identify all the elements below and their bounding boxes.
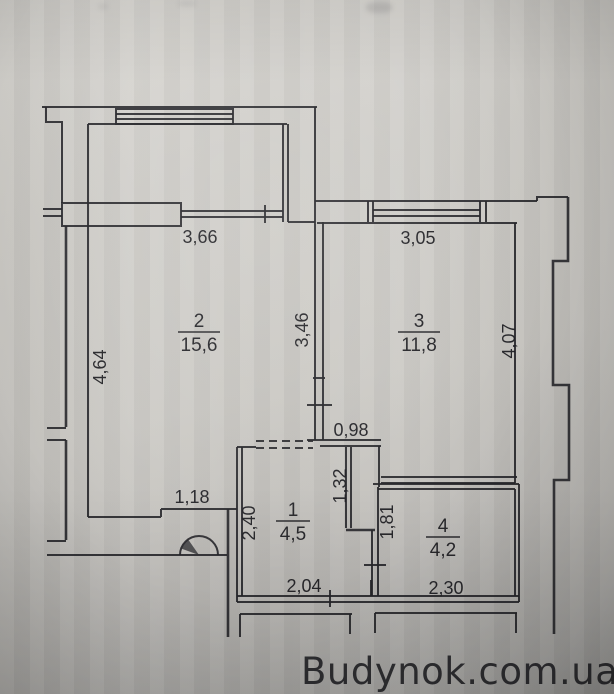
dim-partition-mid: 3,46 (292, 312, 312, 347)
room3-label: 3 11,8 (398, 311, 440, 356)
dim-room2-left: 4,64 (90, 349, 110, 384)
floor-plan-svg: 3,66 3,05 4,64 3,46 4,07 0,98 1,32 1,18 … (0, 0, 614, 694)
dim-room2-bottom: 1,18 (174, 487, 209, 507)
entrance-door-arc (180, 536, 218, 555)
dim-room4-bottom: 2,30 (428, 578, 463, 598)
room1-area: 4,5 (280, 524, 306, 545)
room3-area: 11,8 (401, 335, 437, 356)
dim-hall-left: 2,40 (239, 505, 259, 540)
corridor-stub-lines (240, 613, 517, 637)
room4-label: 4 4,2 (426, 516, 460, 561)
room1-label: 1 4,5 (276, 500, 310, 545)
room1-number: 1 (288, 500, 299, 521)
dim-room3-door: 0,98 (333, 420, 368, 440)
dim-room3-top: 3,05 (400, 228, 435, 248)
room4-area: 4,2 (430, 540, 456, 561)
room2-hall-opening-dashed (256, 441, 313, 448)
wall-pier (62, 203, 181, 226)
room3-number: 3 (414, 311, 425, 332)
dim-hall-right: 1,32 (330, 468, 350, 503)
dim-room2-top: 3,66 (182, 227, 217, 247)
room2-area: 15,6 (181, 335, 218, 356)
room3-window (368, 201, 486, 222)
balcony-window (116, 109, 233, 124)
outer-walls (42, 107, 569, 637)
room2-number: 2 (194, 311, 205, 332)
left-wall-window (43, 209, 66, 440)
room2-balcony-window (181, 205, 283, 223)
room2-label: 2 15,6 (178, 311, 220, 356)
dim-hall-bottom: 2,04 (286, 576, 321, 596)
dim-room3-right: 4,07 (499, 323, 519, 358)
scanned-floor-plan-photo: 3,66 3,05 4,64 3,46 4,07 0,98 1,32 1,18 … (0, 0, 614, 694)
dim-room4-left: 1,81 (377, 504, 397, 539)
watermark-text: Budynok.com.ua (301, 650, 614, 693)
room4-number: 4 (438, 516, 449, 537)
room2-walls (88, 226, 237, 517)
